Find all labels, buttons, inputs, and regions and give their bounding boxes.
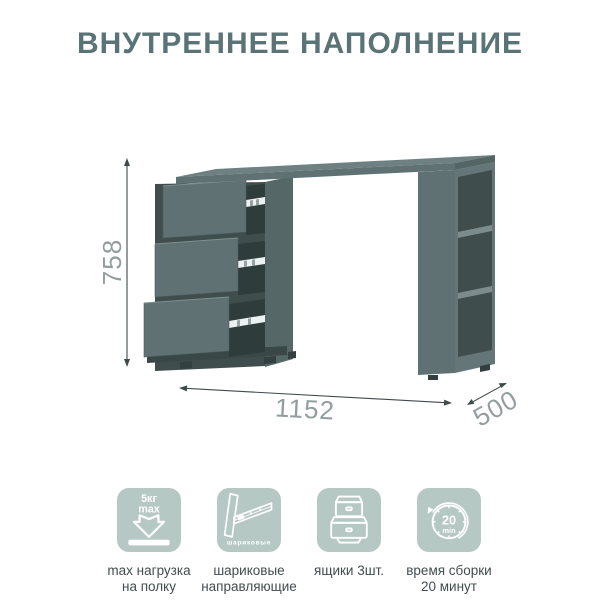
features-row: 5кг max max нагрузка на полку шариковые: [99, 488, 499, 595]
ball-bearing-slides-icon: шариковые: [217, 488, 281, 552]
desk-isometric-drawing: 758 1152 500: [0, 130, 600, 460]
feature-max-load: 5кг max max нагрузка на полку: [99, 488, 199, 595]
max-load-icon: 5кг max: [117, 488, 181, 552]
feature-ball-slides: шариковые шариковые направляющие: [199, 488, 299, 595]
drawer-slide-3: [229, 299, 265, 357]
depth-dimension-label: 500: [468, 384, 523, 433]
page-title: ВНУТРЕННЕЕ НАПОЛНЕНИЕ: [0, 27, 600, 61]
drawer-unit: [144, 176, 296, 371]
feature-assembly-time: 20 min время сборки 20 минут: [399, 488, 499, 595]
width-dimension: 1152: [179, 385, 452, 425]
depth-dimension: 500: [467, 383, 523, 432]
drawer-front-3: [144, 297, 229, 357]
feature-label: ящики 3шт.: [314, 563, 384, 579]
shelf-unit: [418, 162, 495, 380]
svg-text:max: max: [138, 504, 160, 516]
feature-label: max нагрузка на полку: [107, 563, 190, 595]
feature-label: шариковые направляющие: [201, 563, 297, 595]
width-dimension-label: 1152: [274, 392, 335, 425]
height-dimension: 758: [97, 158, 130, 367]
svg-text:шариковые: шариковые: [227, 539, 271, 546]
drawer-front-1: [163, 180, 246, 238]
feature-drawers: ящики 3шт.: [299, 488, 399, 595]
feature-label: время сборки 20 минут: [406, 563, 491, 595]
assembly-time-icon: 20 min: [417, 488, 481, 552]
desk-diagram: 758 1152 500: [0, 130, 600, 460]
drawer-slide-1: [246, 184, 265, 235]
svg-text:min: min: [442, 526, 456, 535]
drawer-front-2: [155, 238, 238, 297]
drawers-icon: [317, 488, 381, 552]
height-dimension-label: 758: [97, 239, 127, 285]
drawer-slide-2: [238, 241, 265, 295]
